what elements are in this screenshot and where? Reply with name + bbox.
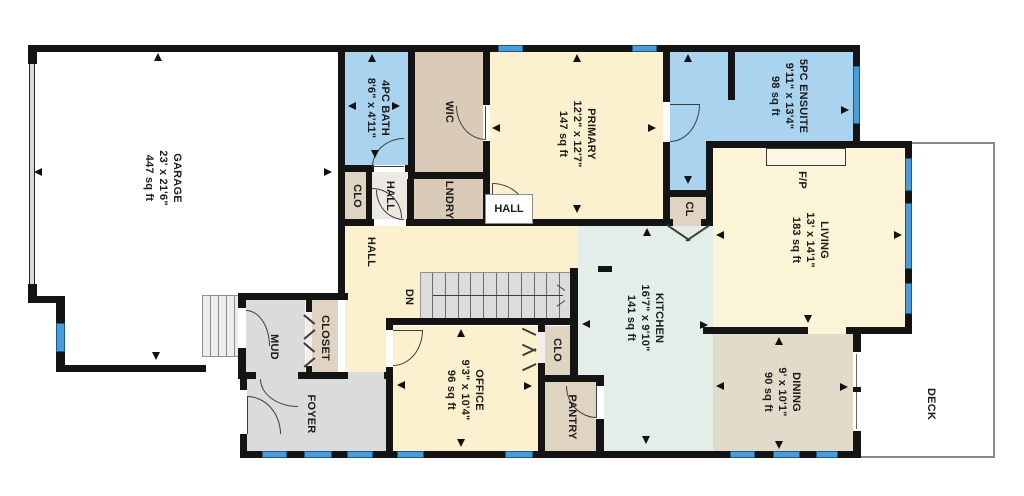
dim-arrow-right [841, 106, 849, 114]
label-kitchen: KITCHEN16'7" x 9'10"141 sq ft [624, 284, 666, 351]
label-hall-small: HALL [383, 181, 397, 211]
dim-arrow-up [457, 329, 465, 337]
floor-hall-main [345, 226, 578, 272]
door-opening [238, 308, 246, 348]
dim-arrow-down [152, 352, 160, 360]
door-opening [538, 332, 545, 363]
label-living: LIVING13' x 14'1"183 sq ft [789, 212, 831, 267]
door-opening [374, 219, 406, 226]
dim-arrow-left [34, 168, 42, 176]
dim-arrow-up [684, 54, 692, 62]
label-stairs-dn: DN [402, 289, 416, 305]
dim-arrow-right [894, 231, 902, 239]
window [347, 451, 373, 458]
label-office: OFFICE9'3" x 10'4"96 sq ft [444, 360, 486, 421]
wall [338, 45, 345, 300]
dim-arrow-down [684, 176, 692, 184]
label-closet-primary: CL [682, 201, 696, 216]
dim-arrow-left [716, 231, 724, 239]
wall [407, 179, 414, 222]
dim-arrow-up [368, 54, 376, 62]
label-closet-mud: CLOSET [318, 315, 332, 361]
stairs-entry-steps [202, 295, 242, 357]
dim-arrow-down [642, 436, 650, 444]
window [905, 158, 912, 191]
dim-arrow-left [348, 102, 356, 110]
fireplace-box [766, 148, 846, 166]
window [730, 451, 755, 458]
window [905, 203, 912, 269]
window [816, 451, 838, 458]
door-opening [596, 386, 604, 419]
dim-arrow-left [397, 381, 405, 389]
label-dining: DINING9' x 10'1"90 sq ft [761, 367, 803, 416]
wall [28, 45, 37, 64]
window [773, 451, 800, 458]
dim-arrow-up [154, 53, 162, 61]
window [262, 451, 287, 458]
label-clo-office: CLO [550, 338, 564, 362]
label-mud: MUD [267, 334, 281, 360]
label-primary: PRIMARY12'2" x 12'7"147 sq ft [556, 100, 598, 167]
label-wic: WIC [442, 101, 456, 123]
dim-arrow-down [457, 439, 465, 447]
dim-arrow-left [582, 320, 590, 328]
dim-arrow-left [492, 124, 500, 132]
wall [703, 327, 808, 334]
dim-arrow-right [648, 124, 656, 132]
window [56, 323, 65, 352]
label-garage: GARAGE23' x 21'6"447 sq ft [142, 150, 184, 205]
label-ensuite: 5PC ENSUITE9'11" x 13'4"98 sq ft [768, 59, 810, 133]
door-opening [663, 102, 670, 142]
label-pantry: PANTRY [565, 394, 579, 439]
wall [728, 45, 735, 100]
wall [598, 266, 612, 272]
wall [238, 293, 348, 300]
hall-label: HALL [494, 203, 523, 215]
dim-arrow-up [573, 54, 581, 62]
dim-arrow-down [804, 315, 812, 323]
door-opening [240, 390, 247, 434]
wall [240, 451, 861, 458]
label-clo-bath: CLO [350, 184, 364, 208]
wall [386, 318, 578, 325]
label-hall-main: HALL [364, 237, 378, 267]
dim-arrow-right [840, 383, 848, 391]
dim-arrow-right [524, 382, 532, 390]
dim-arrow-left [716, 382, 724, 390]
wall [408, 172, 490, 179]
dim-arrow-right [324, 168, 332, 176]
dim-arrow-down [573, 205, 581, 213]
window [498, 45, 523, 52]
wall [538, 375, 604, 382]
label-bath-4pc: 4PC BATH8'6" x 4'11" [364, 78, 392, 138]
label-fireplace: F/P [795, 171, 809, 189]
dim-arrow-right [700, 321, 708, 329]
hall-label-box: HALL [485, 194, 533, 224]
floor-ensuite [667, 49, 857, 144]
door-opening [386, 330, 393, 367]
window [905, 283, 912, 314]
window [505, 451, 533, 458]
window [632, 45, 657, 52]
label-foyer: FOYER [304, 395, 318, 434]
label-laundry: LNDRY [442, 181, 456, 219]
door-opening [348, 372, 384, 379]
deck-area-upper [912, 142, 995, 334]
window [304, 451, 332, 458]
wall [56, 365, 206, 372]
wall [408, 45, 415, 172]
dim-arrow-up [643, 228, 651, 236]
window [397, 451, 424, 458]
wall [707, 141, 912, 148]
dim-arrow-down [775, 441, 783, 449]
window [853, 66, 860, 124]
floor-hall-to-foyer [345, 318, 386, 376]
wall [28, 45, 860, 52]
stairs-direction-arrow [433, 295, 563, 296]
dim-arrow-up [775, 337, 783, 345]
dim-arrow-right [392, 102, 400, 110]
floor-plan: HALL GARAGE23' x 21'6"447 sq ft 4PC BATH… [0, 0, 1024, 496]
wall [706, 141, 713, 226]
label-deck: DECK [924, 388, 938, 420]
dim-arrow-down [371, 150, 379, 158]
door-opening [256, 372, 298, 379]
